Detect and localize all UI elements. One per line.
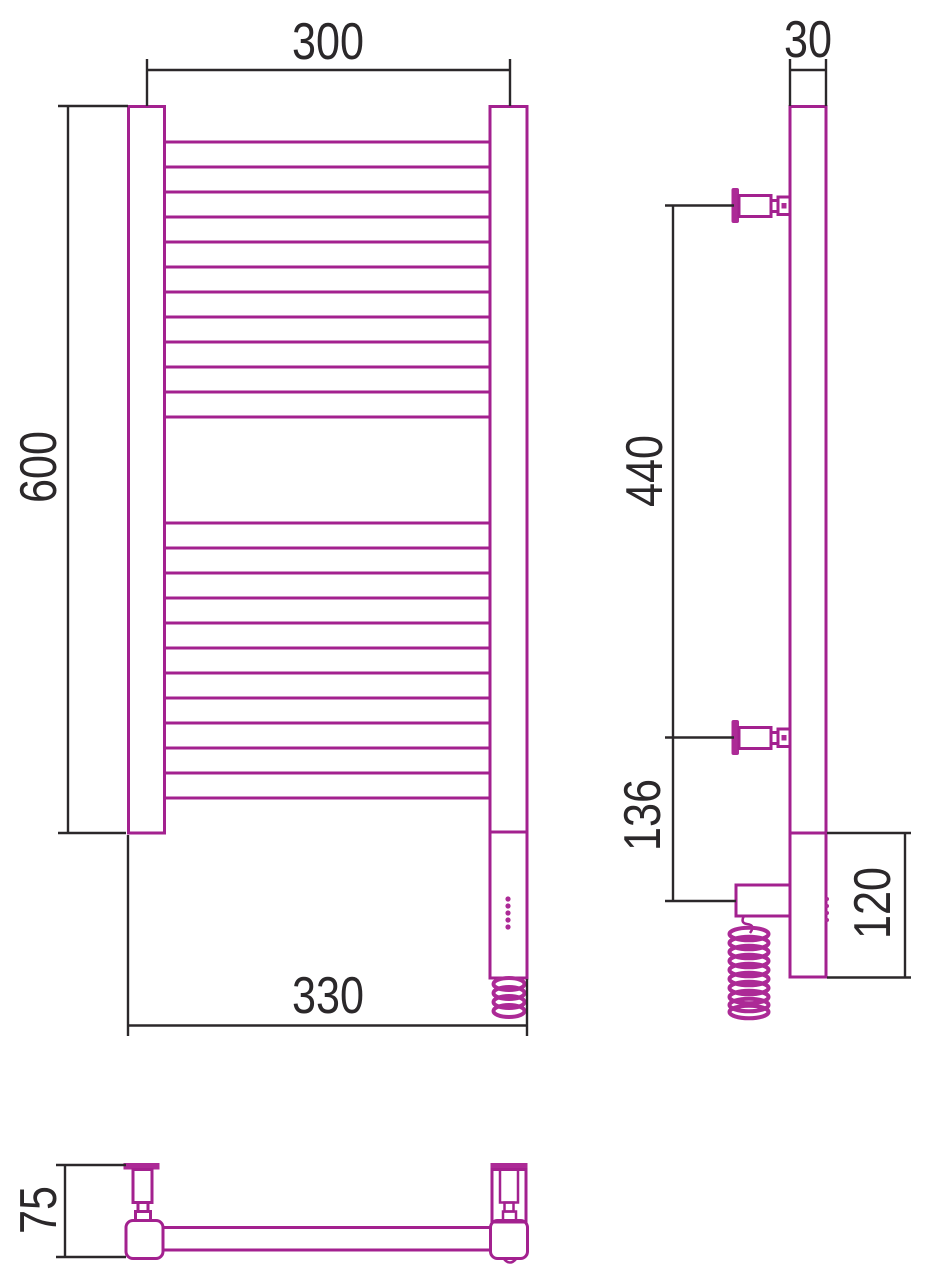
dim-label-120: 120 — [844, 867, 902, 939]
cable-neck — [743, 916, 753, 933]
led-bump — [825, 911, 829, 915]
led-bump — [825, 918, 829, 922]
bracket-screw — [782, 203, 787, 209]
bracket-plate — [492, 1170, 526, 1223]
side-lower-section — [790, 833, 826, 977]
dim-75: 75 — [10, 1165, 126, 1257]
bracket-stem — [500, 1170, 518, 1203]
dim-label-75: 75 — [10, 1186, 68, 1234]
dim-label-300: 300 — [292, 13, 364, 71]
wall-bracket-top — [732, 188, 791, 223]
right-post — [490, 107, 527, 833]
led-dot — [505, 896, 510, 901]
dim-label-30: 30 — [784, 11, 832, 69]
led-dot — [505, 917, 510, 922]
bottom-left-post — [126, 1221, 163, 1259]
drawing-canvas: 300 30 600 440 136 — [0, 0, 929, 1280]
led-bump — [825, 897, 829, 901]
bottom-right-post — [491, 1221, 528, 1259]
dim-136: 136 — [614, 738, 736, 902]
power-cable-coil-side — [730, 928, 769, 1019]
left-post — [129, 107, 165, 834]
rails — [165, 142, 491, 798]
led-dot — [505, 910, 510, 915]
dimensions: 300 30 600 440 136 — [10, 11, 911, 1257]
bracket-body — [739, 728, 771, 749]
dim-440: 440 — [616, 206, 734, 738]
dim-330: 330 — [128, 835, 527, 1036]
dim-30: 30 — [784, 11, 832, 106]
wall-bracket-bottom — [732, 720, 791, 755]
bottom-left-bracket — [124, 1163, 160, 1221]
bracket-screw — [782, 735, 787, 741]
side-post — [790, 107, 826, 834]
bracket-stem — [133, 1170, 152, 1203]
dim-label-136: 136 — [614, 779, 672, 851]
technical-drawing: 300 30 600 440 136 — [0, 0, 929, 1280]
dim-label-600: 600 — [10, 431, 68, 503]
dim-120: 120 — [827, 833, 911, 978]
led-bump — [825, 904, 829, 908]
bottom-right-bracket — [491, 1163, 528, 1222]
heating-element-box — [736, 885, 790, 916]
bracket-body — [739, 196, 771, 217]
dim-600: 600 — [10, 106, 128, 833]
led-dot — [505, 903, 510, 908]
side-view — [730, 107, 830, 1019]
dim-label-440: 440 — [616, 435, 674, 507]
dim-300: 300 — [147, 13, 510, 106]
led-dot — [505, 924, 510, 929]
front-view — [129, 107, 528, 1018]
dim-label-330: 330 — [292, 967, 364, 1025]
bracket-waist — [505, 1203, 514, 1212]
power-cable-coil-front — [494, 978, 525, 1017]
led-indicators — [505, 896, 510, 929]
bottom-view — [124, 1163, 528, 1263]
